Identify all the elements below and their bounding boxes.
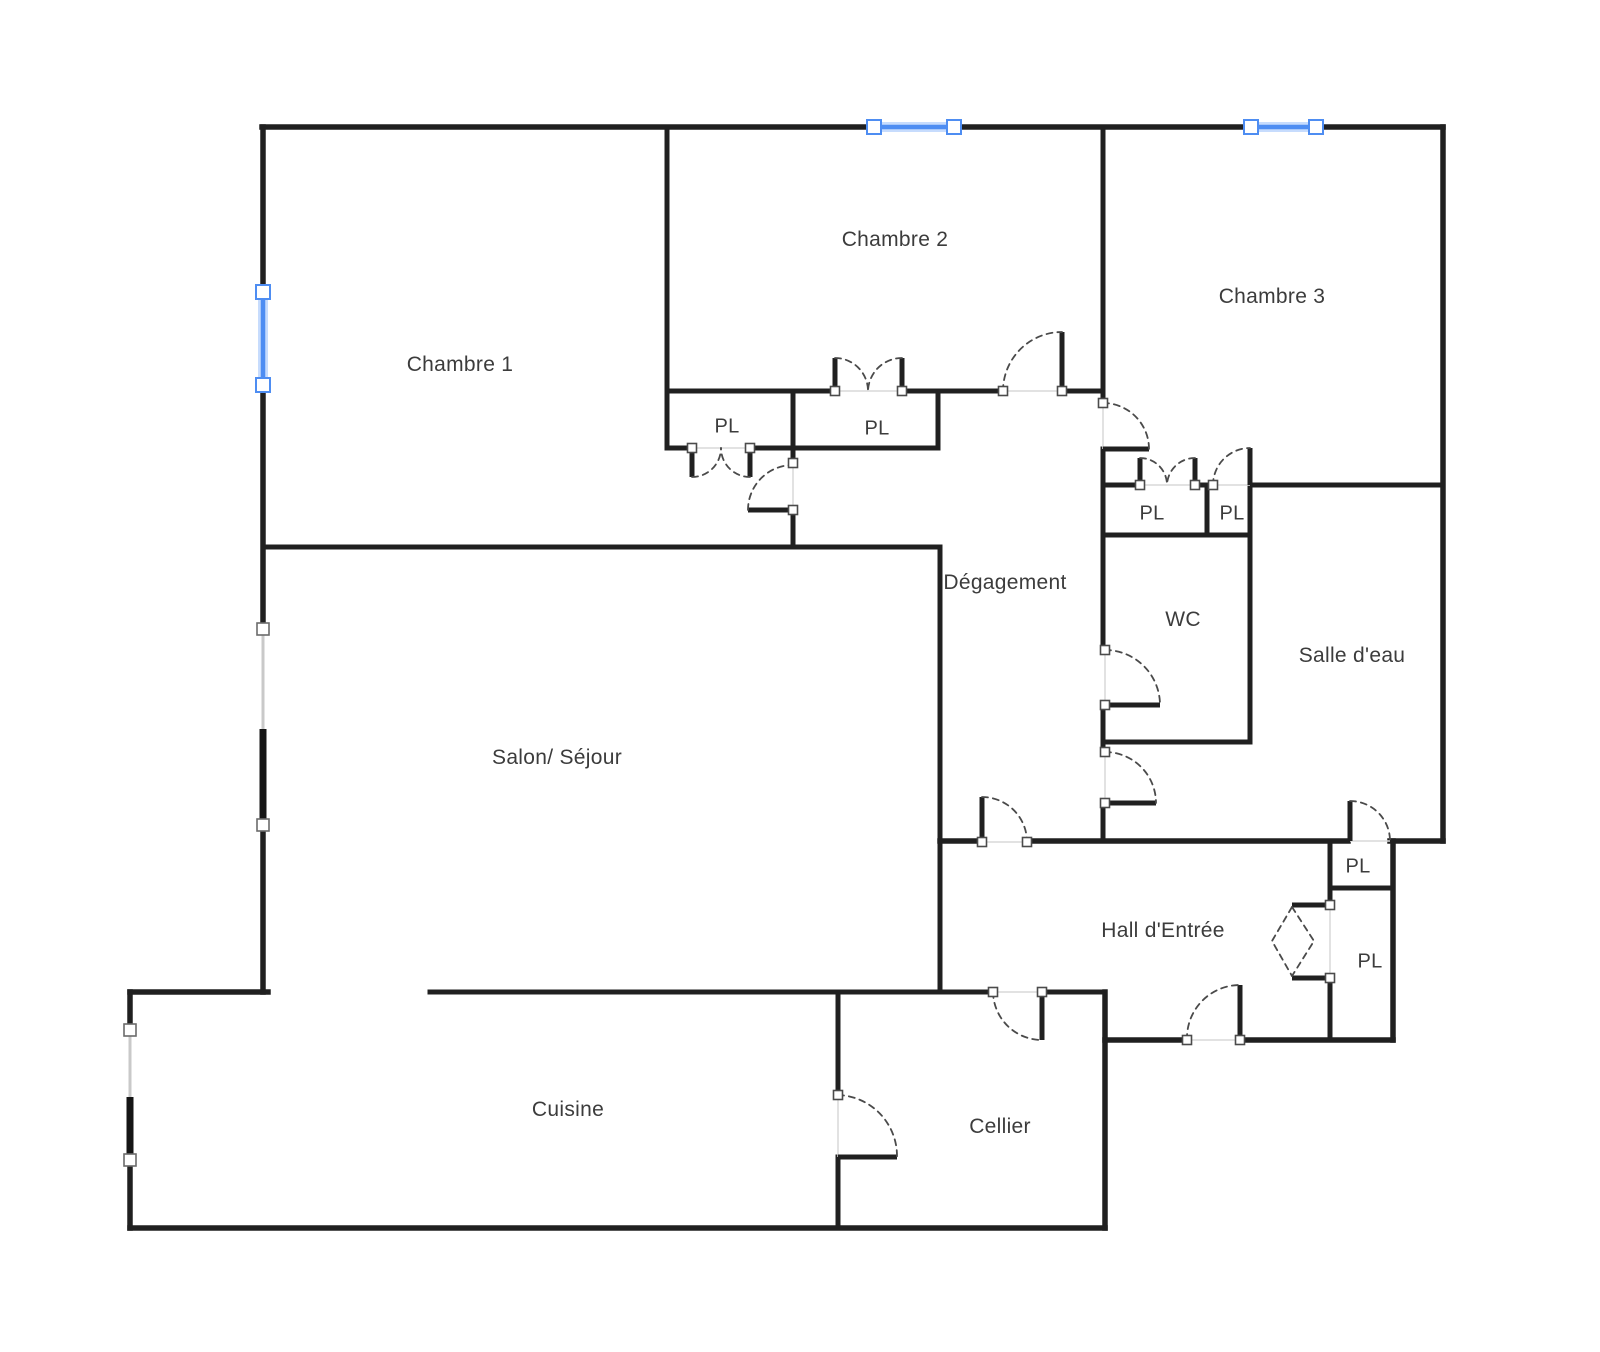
door-swing-arc (1105, 650, 1160, 705)
door-swing-arc (982, 797, 1027, 842)
node-handle[interactable] (1209, 481, 1218, 490)
room-label-salle-deau: Salle d'eau (1299, 644, 1406, 668)
door-pl2-chambre-3[interactable] (1213, 448, 1250, 485)
closet-label-pl-1: PL (714, 416, 739, 439)
door-cellier-hall[interactable] (993, 992, 1042, 1040)
window-salon[interactable] (257, 623, 269, 831)
closet-label-pl-5: PL (1345, 856, 1370, 879)
door-swing-arc (1105, 752, 1156, 803)
node-handle[interactable] (1101, 748, 1110, 757)
window-handle[interactable] (947, 120, 961, 134)
door-wc[interactable] (1105, 650, 1160, 705)
room-label-salon: Salon/ Séjour (492, 746, 622, 770)
door-degagement-hall[interactable] (982, 797, 1027, 842)
window-handle[interactable] (257, 623, 269, 635)
node-handle[interactable] (688, 444, 697, 453)
floorplan: Chambre 1 Chambre 2 Chambre 3 Salon/ Séj… (0, 0, 1600, 1352)
closet-label-pl-2: PL (864, 418, 889, 441)
door-fold-line (1272, 907, 1292, 976)
node-handle[interactable] (1183, 1036, 1192, 1045)
doors (692, 332, 1390, 1157)
node-handle[interactable] (1023, 838, 1032, 847)
node-handle[interactable] (1236, 1036, 1245, 1045)
window-handle[interactable] (256, 285, 270, 299)
node-handle[interactable] (1191, 481, 1200, 490)
window-handle[interactable] (867, 120, 881, 134)
window-cuisine[interactable] (124, 1024, 136, 1166)
window-handle[interactable] (124, 1154, 136, 1166)
room-label-degagement: Dégagement (943, 571, 1066, 595)
node-handle[interactable] (1058, 387, 1067, 396)
door-chambre-3[interactable] (1103, 403, 1149, 449)
node-handle[interactable] (1038, 988, 1047, 997)
room-label-chambre-2: Chambre 2 (842, 228, 949, 252)
door-swing-arc (1003, 332, 1062, 391)
door-pl-salle-deau[interactable] (1350, 801, 1390, 841)
node-handle[interactable] (789, 459, 798, 468)
node-handle[interactable] (999, 387, 1008, 396)
door-cuisine-cellier[interactable] (838, 1095, 897, 1157)
door-chambre-2[interactable] (1003, 332, 1062, 391)
door-swing-arc (1213, 448, 1250, 485)
node-handle[interactable] (746, 444, 755, 453)
room-label-chambre-3: Chambre 3 (1219, 285, 1326, 309)
room-label-chambre-1: Chambre 1 (407, 353, 514, 377)
node-handle[interactable] (978, 838, 987, 847)
node-handle[interactable] (1101, 701, 1110, 710)
door-swing-arc (993, 992, 1042, 1040)
closet-label-pl-4: PL (1219, 503, 1244, 526)
double-door-pl-chambre-2[interactable] (835, 358, 902, 391)
window-handle[interactable] (257, 819, 269, 831)
node-handle[interactable] (898, 387, 907, 396)
bifold-door-pl-hall[interactable] (1272, 905, 1330, 978)
room-label-hall: Hall d'Entrée (1101, 919, 1224, 943)
door-fold-line (1292, 907, 1314, 976)
window-handle[interactable] (1309, 120, 1323, 134)
door-chambre-1[interactable] (748, 465, 793, 510)
door-swing-arc (1187, 985, 1240, 1040)
node-handle[interactable] (1101, 799, 1110, 808)
room-label-cuisine: Cuisine (532, 1098, 604, 1122)
node-handle[interactable] (789, 506, 798, 515)
double-door-pl-chambre-3[interactable] (1140, 458, 1195, 485)
node-handle[interactable] (989, 988, 998, 997)
door-salle-deau[interactable] (1105, 752, 1156, 803)
door-entrance[interactable] (1187, 985, 1240, 1040)
window-handle[interactable] (256, 378, 270, 392)
door-swing-arc (1103, 403, 1149, 449)
window-handle[interactable] (124, 1024, 136, 1036)
node-handle[interactable] (1136, 481, 1145, 490)
room-label-cellier: Cellier (969, 1115, 1031, 1139)
node-handle[interactable] (1101, 646, 1110, 655)
door-swing-arc (748, 465, 793, 510)
closet-label-pl-6: PL (1357, 951, 1382, 974)
floorplan-canvas (0, 0, 1600, 1352)
node-handle[interactable] (834, 1091, 843, 1100)
node-handle[interactable] (1326, 901, 1335, 910)
window-handle[interactable] (1244, 120, 1258, 134)
door-swing-arc (1350, 801, 1390, 841)
room-label-wc: WC (1165, 608, 1201, 632)
window-chambre-2-selected[interactable] (867, 120, 961, 134)
node-handle[interactable] (1326, 974, 1335, 983)
windows (124, 120, 1323, 1166)
node-handle[interactable] (1099, 399, 1108, 408)
node-handle[interactable] (831, 387, 840, 396)
closet-label-pl-3: PL (1139, 503, 1164, 526)
door-swing-arc (838, 1095, 897, 1157)
window-chambre-3-selected[interactable] (1244, 120, 1323, 134)
window-chambre-1-selected[interactable] (256, 285, 270, 392)
double-door-pl-chambre-1[interactable] (692, 448, 750, 477)
